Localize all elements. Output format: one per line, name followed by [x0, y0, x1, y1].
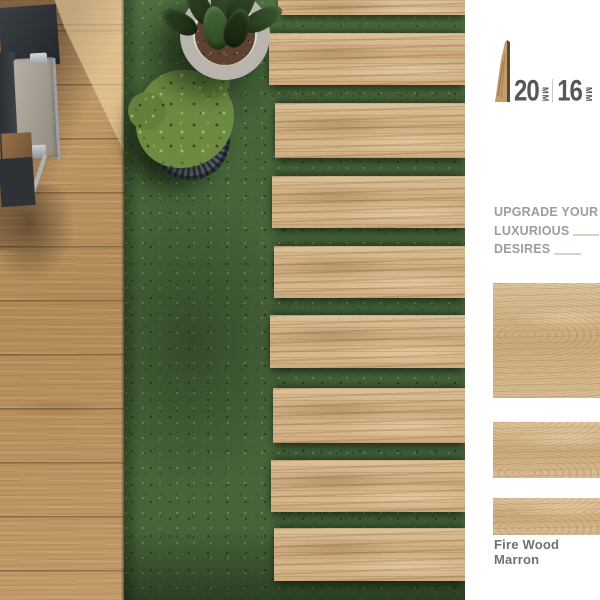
plank-profile-icon: [495, 40, 511, 103]
paver-plank: [274, 246, 465, 298]
headline-text: LUXURIOUS: [494, 222, 569, 241]
cactus-plant: [165, 0, 285, 76]
tile-swatch-small[interactable]: [493, 498, 600, 535]
chair-seat: [0, 157, 36, 207]
thickness-unit: MM: [541, 87, 549, 102]
thickness-divider: [552, 79, 554, 102]
paver-plank: [272, 176, 465, 228]
paver-plank: [275, 103, 465, 158]
product-name-label: Fire Wood Marron: [494, 537, 600, 567]
headline-line-1: UPGRADE YOUR: [494, 203, 600, 222]
paver-plank: [270, 315, 465, 368]
headline-rule: [554, 253, 581, 255]
headline-rule: [573, 234, 599, 236]
paver-plank: [274, 528, 465, 581]
deck-edge-shadow: [121, 0, 124, 600]
paver-plank: [278, 0, 465, 15]
thickness-value: 16: [557, 80, 582, 103]
paver-plank: [273, 388, 465, 443]
headline: UPGRADE YOUR LUXURIOUS DESIRES: [494, 203, 600, 259]
lifestyle-photo: [0, 0, 465, 600]
chair-hinge: [30, 53, 48, 65]
thickness-value: 20: [514, 80, 539, 103]
paver-plank: [269, 33, 465, 85]
thickness-badge: 20 MM 16 MM: [495, 39, 592, 103]
paver-plank: [271, 460, 465, 512]
shrub-leaves: [128, 92, 166, 130]
thickness-unit: MM: [584, 87, 592, 102]
tile-swatch-large[interactable]: [493, 283, 600, 398]
headline-line-2: LUXURIOUS: [494, 222, 600, 241]
headline-line-3: DESIRES: [494, 240, 600, 259]
lounge-chair: [0, 6, 80, 216]
tile-swatch-medium[interactable]: [493, 422, 600, 478]
headline-text: UPGRADE YOUR: [494, 203, 598, 222]
headline-text: DESIRES: [494, 240, 550, 259]
catalog-page: 20 MM 16 MM UPGRADE YOUR LUXURIOUS DESIR…: [0, 0, 600, 600]
